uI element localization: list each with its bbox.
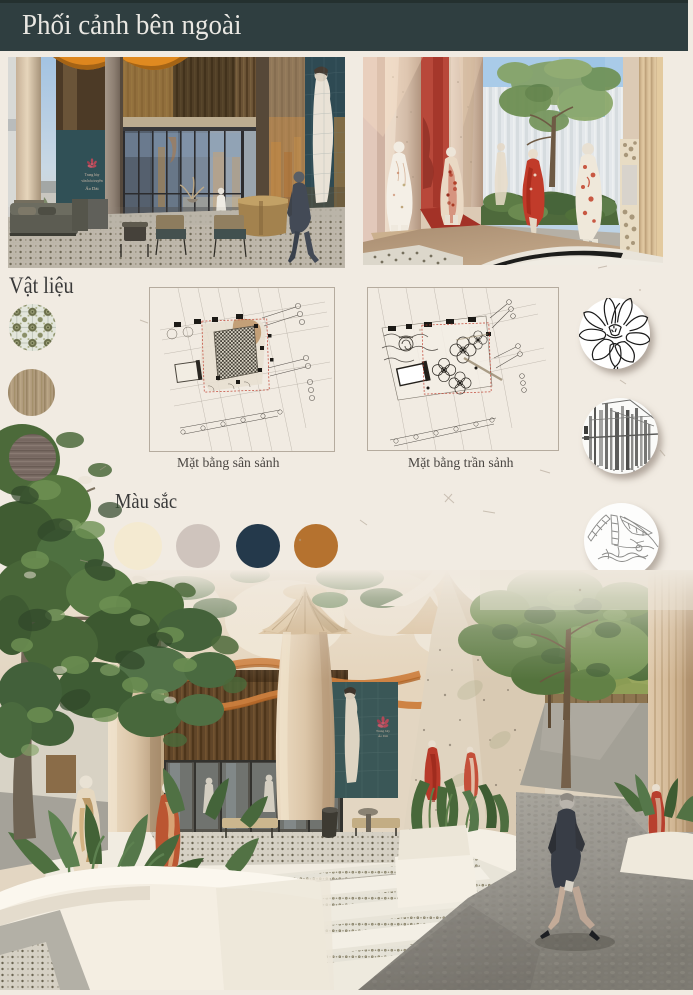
svg-text:Áo Dài: Áo Dài: [85, 186, 99, 191]
svg-text:Áo Dài: Áo Dài: [378, 733, 388, 738]
svg-text:Trung bày: Trung bày: [376, 729, 390, 733]
svg-text:Trung bày: Trung bày: [85, 173, 100, 177]
svg-text:văn hóa truyền: văn hóa truyền: [81, 179, 103, 183]
